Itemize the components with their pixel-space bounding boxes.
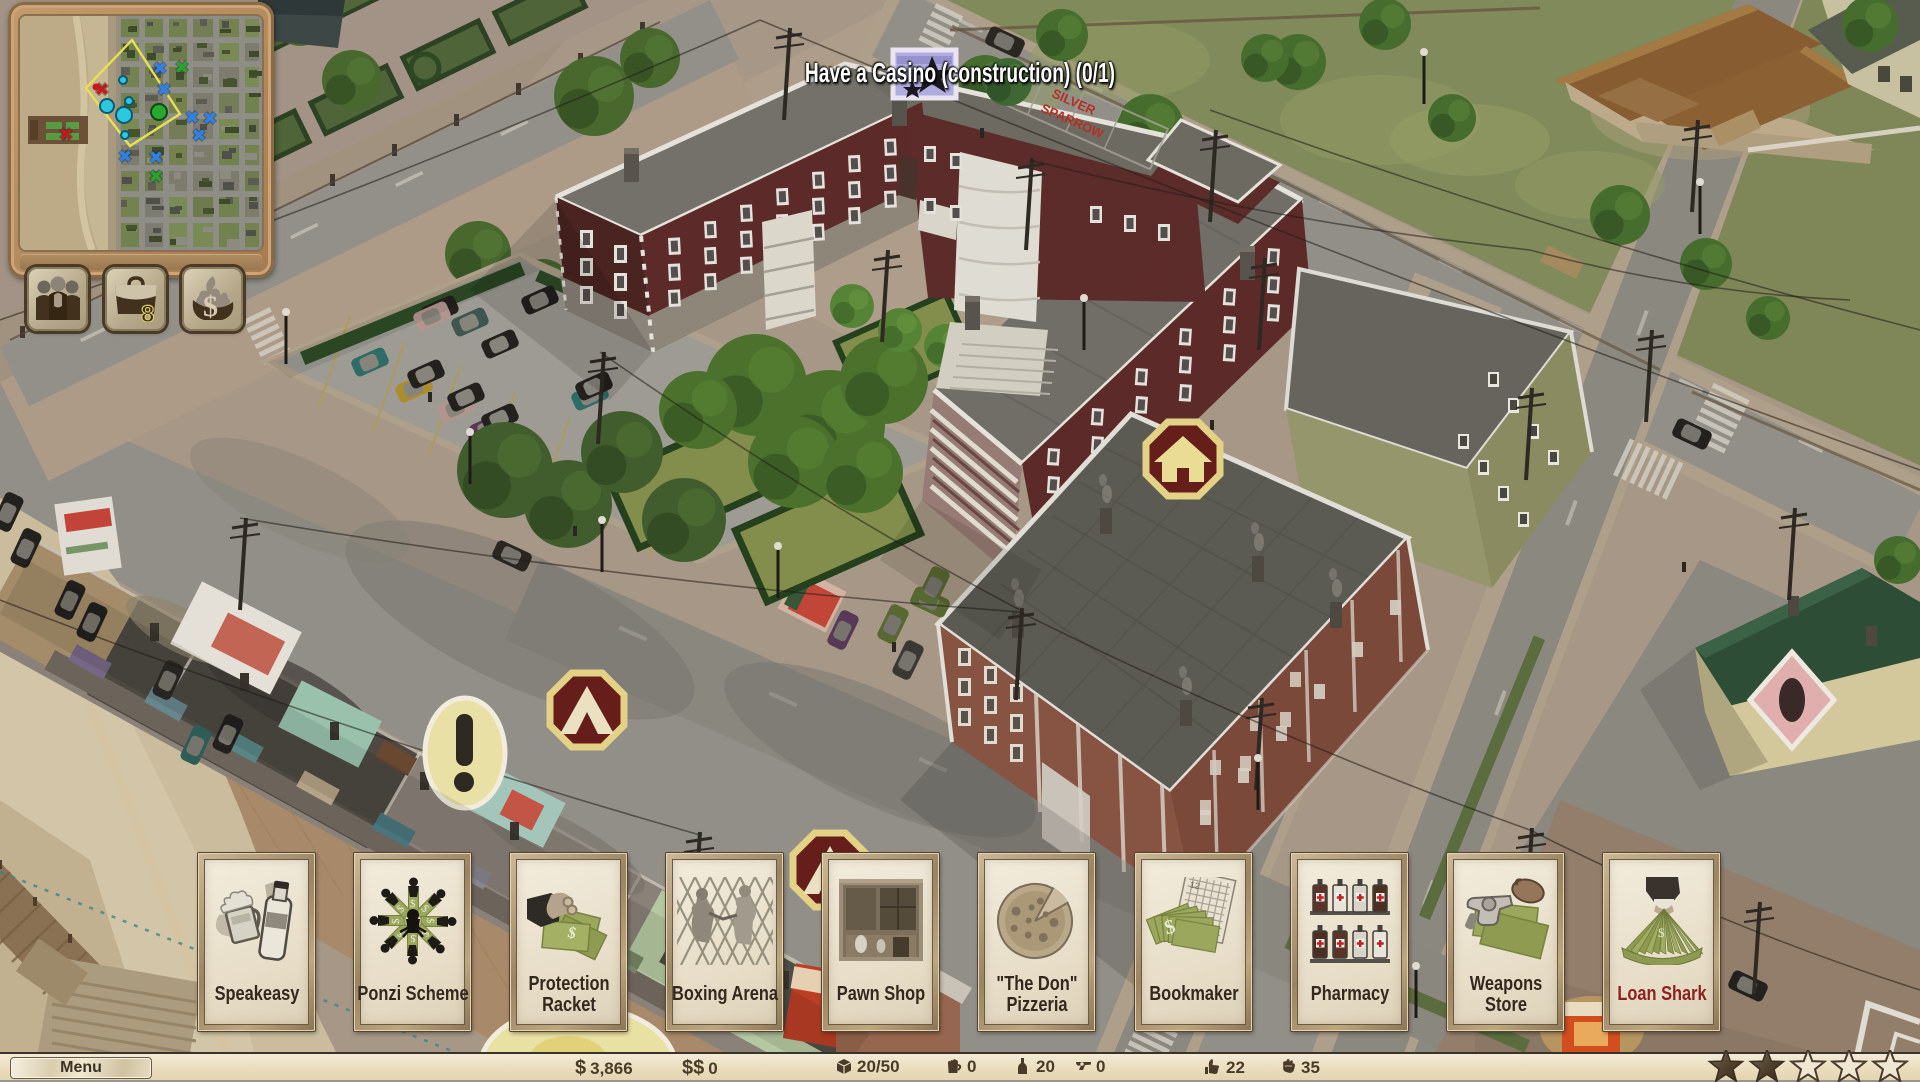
svg-text:$: $ xyxy=(410,898,416,910)
svg-text:8: 8 xyxy=(141,301,154,322)
svg-text:$: $ xyxy=(203,290,218,322)
svg-text:$: $ xyxy=(424,918,436,924)
svg-text:$: $ xyxy=(390,918,402,924)
svg-text:$: $ xyxy=(1658,925,1665,940)
svg-text:12: 12 xyxy=(1188,879,1200,891)
svg-text:$: $ xyxy=(410,932,416,944)
